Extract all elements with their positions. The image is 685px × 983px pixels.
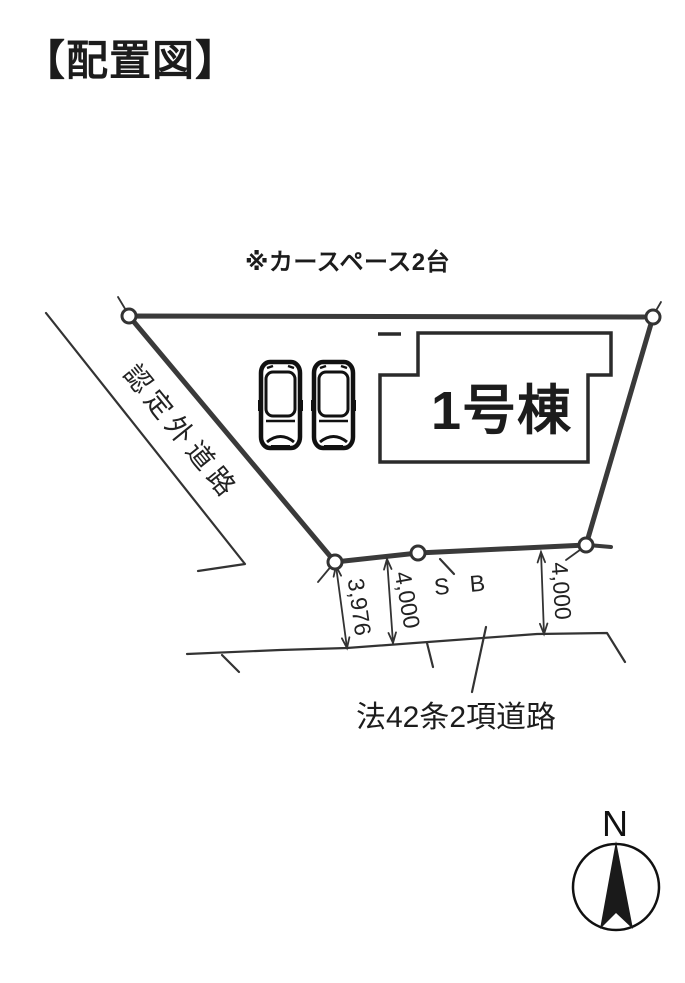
carspace-note: ※カースペース2台 bbox=[245, 242, 450, 277]
page-title: 【配置図】 bbox=[23, 27, 238, 88]
site-plan-canvas bbox=[0, 0, 685, 983]
dimension-4000-right: 4,000 bbox=[546, 561, 577, 620]
building-label: 1号棟 bbox=[431, 366, 572, 445]
bottom-road-label: 法42条2項道路 bbox=[356, 692, 556, 736]
compass-north-arrow-icon bbox=[573, 841, 659, 930]
compass-north-label: N bbox=[602, 803, 628, 845]
setback-label: S B bbox=[433, 569, 493, 601]
car-icon bbox=[311, 362, 356, 448]
bottom-road-edge-line bbox=[187, 633, 625, 672]
bottom-road-leader-line bbox=[472, 627, 486, 692]
car-icon bbox=[258, 362, 303, 448]
